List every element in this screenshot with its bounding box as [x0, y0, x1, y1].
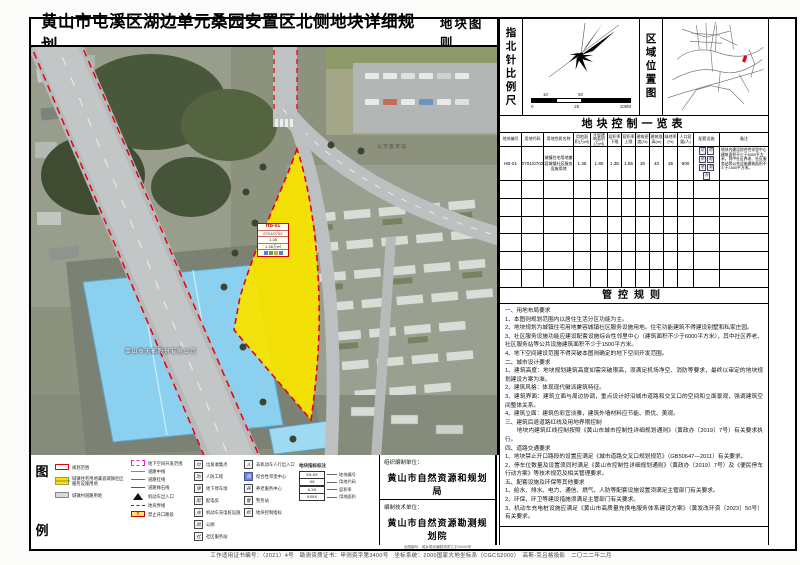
rule-line: 4、建筑立面：建筑色彩宜淡雅，建筑外墙材料应节能、质优、美观。 [505, 410, 763, 419]
legend-item-label: 城镇住宅用地兼容城镇社区服务设施用地 [72, 476, 127, 486]
region-location-map [663, 19, 768, 115]
empty-cell [694, 252, 720, 269]
legend-item: 邻综合性邻里中心 [244, 472, 296, 481]
empty-cell [650, 181, 664, 198]
empty-cell [500, 181, 522, 198]
legend-item: 社社区服务站 [194, 532, 242, 541]
yellow-fill-swatch: 0701/0702 [55, 477, 69, 485]
empty-cell [574, 270, 591, 287]
north-arrow-cell: 10 50 0 25 100M [523, 19, 640, 115]
plot-tag-icons [258, 250, 288, 256]
table-empty-row [500, 234, 768, 252]
empty-cell [574, 234, 591, 251]
table-empty-row [500, 181, 768, 199]
empty-cell [574, 199, 591, 216]
rule-line: 4、地下空间建设范围不得突破本图则确定的地下空间开发范围。 [505, 350, 763, 359]
table-cell: 城镇住宅用地兼容城镇社区服务设施用地 [544, 147, 574, 180]
empty-cell [522, 252, 544, 269]
scale-tick-25: 25 [574, 104, 579, 109]
legend-item: 道路缘石线 [131, 485, 191, 490]
no-open-swatch [131, 511, 145, 517]
region-map-label: 区域位置图 [640, 19, 663, 115]
legend-item: 机动车出入口 [131, 493, 191, 500]
rule-line: 1、地块禁止开口路段的设置应满足《城市道路交叉口规划规范》（GB50647—20… [505, 453, 763, 462]
empty-cell [500, 199, 522, 216]
legend-item: 防人防工程 [194, 472, 242, 481]
empty-cell [544, 181, 574, 198]
footer-disclaimer: 工作适用证书编号：（2021）4号 勘测资质证书：甲测资字第3400号 坐标系统… [29, 551, 793, 559]
facility-icon: 标 [244, 508, 253, 517]
empty-cell [694, 217, 720, 234]
legend-item: 城镇村道路用地 [55, 492, 127, 498]
control-rules-panel: 管控规则 一、用地布局要求1、本图则规划范围内以居住生活分区功能为主。2、地块规… [500, 288, 768, 527]
facility-icon: 厕 [194, 520, 203, 529]
empty-cell [522, 234, 544, 251]
magenta-dash-swatch [131, 460, 145, 466]
legend-item-label: 道路缘石线 [148, 485, 169, 490]
scale-tick-100: 100M [620, 104, 631, 109]
column-header: 建筑限高(m) [650, 133, 664, 146]
empty-cell [636, 270, 650, 287]
table-cell: 35 [664, 147, 678, 180]
annotation-leader [327, 497, 337, 498]
column-header: 建筑密度(%) [636, 133, 650, 146]
legend-item: 规划范围 [55, 464, 127, 470]
column-header: 容积率上限 [622, 133, 636, 146]
empty-cell [636, 217, 650, 234]
column-header: 计容建筑面积(万㎡) [591, 133, 608, 146]
scale-tick-0: 0 [531, 104, 534, 109]
empty-cell [664, 199, 678, 216]
empty-cell [622, 181, 636, 198]
rule-line: 2、停车位数量及设置须同时满足《黄山市控制性详细规划通则》（黄政办〔2019〕7… [505, 462, 763, 479]
empty-cell [608, 234, 622, 251]
column-header: 容积率下限 [608, 133, 622, 146]
landuse-code: 0701/0702 [56, 478, 68, 485]
rule-line: 1、给水、排水、电力、通信、燃气、人防等配套设施设置须满足主管部门有关要求。 [505, 487, 763, 496]
empty-cell [694, 270, 720, 287]
empty-cell [574, 217, 591, 234]
legend-item: 垃垃圾收集点 [194, 460, 242, 469]
organizing-unit-name: 黄山市自然资源和规划局 [384, 471, 491, 497]
empty-cell [678, 181, 694, 198]
arrow-swatch [133, 493, 143, 500]
table-data-row: HB-010701/0702城镇住宅用地兼容城镇社区服务设施用地1.381.90… [500, 147, 768, 181]
empty-cell [694, 181, 720, 198]
empty-cell [608, 217, 622, 234]
legend-item-label: 养老服务中心 [256, 486, 282, 491]
compass-scale-label: 指北针比例尺 [500, 19, 523, 115]
drawing-sheet-frame: 黄山市屯溪区湖边单元桑园安置区北侧地块详细规划 地块图则 [29, 17, 797, 551]
empty-cell [720, 199, 768, 216]
control-rules-text: 一、用地布局要求1、本图则规划范围内以居住生活分区功能为主。2、地块规划为城镇住… [500, 304, 768, 525]
empty-cell [664, 252, 678, 269]
legend-item-label: 配电房 [206, 498, 219, 503]
rule-line: 2、建筑风格：体现现代徽派建筑特征。 [505, 384, 763, 393]
rule-line: 四、道路交通要求 [505, 445, 763, 454]
rule-line: 3、建筑界面：建筑立面与周边协调，重点设计好沿城市道路和交叉口的空间和立面景观，… [505, 393, 763, 410]
empty-cell [694, 199, 720, 216]
rule-line: 3、机动车充电桩设施应满足《黄山市高质量充换电服务体系建设方案》（黄发改环资〔2… [505, 505, 763, 522]
empty-cell [720, 270, 768, 287]
empty-cell [591, 199, 608, 216]
legend-item: 地块界线 [131, 503, 191, 508]
facility-icon: 社 [703, 172, 711, 180]
column-header: 备注 [720, 133, 768, 146]
empty-cell [522, 199, 544, 216]
facility-icon: 人 [244, 460, 253, 469]
column-header: 地块编号 [500, 133, 522, 146]
facilities-cell: 垃防停配充厕社 [694, 147, 720, 180]
plot-control-table: 地块控制一览表 地块编号用地代码用地性质名称用地面积(万㎡)计容建筑面积(万㎡)… [500, 116, 768, 288]
legend-item: 道路红线 [131, 477, 191, 482]
empty-cell [650, 234, 664, 251]
facility-icon: 停 [194, 484, 203, 493]
legend-item-label: 地下空间开发范围 [148, 461, 182, 466]
legend-title: 图 例 [35, 461, 49, 539]
empty-cell [678, 217, 694, 234]
legend-item-label: 社区服务站 [206, 534, 227, 539]
organizing-unit-cell: 组织编制单位： 黄山市自然资源和规划局 [380, 455, 495, 500]
legend-item: 充机动车充电桩设施 [194, 508, 242, 517]
empty-cell [591, 270, 608, 287]
empty-cell [622, 199, 636, 216]
facility-icon: 充 [699, 164, 707, 172]
legend-item: 道路中线 [131, 469, 191, 474]
empty-cell [622, 217, 636, 234]
rule-line: 三、建筑后退道路红线及用地界限控制 [505, 419, 763, 428]
table-empty-row [500, 252, 768, 270]
empty-cell [522, 270, 544, 287]
column-header: 人口容量(人) [678, 133, 694, 146]
empty-cell [608, 181, 622, 198]
empty-cell [608, 270, 622, 287]
mini-facility-icon [269, 251, 273, 255]
column-header: 绿地率(%) [664, 133, 678, 146]
region-map-graphic [663, 19, 768, 115]
annotation-label: 用地代码 [339, 479, 356, 485]
empty-cell [664, 217, 678, 234]
legend-column-services: 人非机动车人行出入口邻综合性邻里中心养养老服务中心警警务站标地块控制指标 [244, 460, 296, 517]
right-info-panel: 指北针比例尺 [499, 19, 769, 545]
empty-cell [591, 234, 608, 251]
legend-item: 配配电房 [194, 496, 242, 505]
empty-cell [500, 217, 522, 234]
facility-icon: 社 [194, 532, 203, 541]
control-rules-title: 管控规则 [500, 288, 768, 304]
facility-icon: 充 [194, 508, 203, 517]
bus-terminus-label: 公交首末站 [377, 143, 407, 150]
legend-char-2: 例 [35, 520, 49, 539]
empty-cell [678, 199, 694, 216]
compass-region-row: 指北针比例尺 [500, 19, 768, 116]
page-subtitle: 地块图则 [440, 13, 497, 51]
empty-cell [650, 270, 664, 287]
legend-char-1: 图 [35, 461, 49, 480]
empty-cell [500, 270, 522, 287]
empty-cell [678, 234, 694, 251]
column-header: 用地性质名称 [544, 133, 574, 146]
remark-cell: 地块内建设综合性邻里中心建筑面积不少于6000平方米，其中社区养老、社区服务站等… [720, 147, 768, 180]
rule-line: 一、用地布局要求 [505, 307, 763, 316]
empty-cell [608, 252, 622, 269]
empty-cell [720, 181, 768, 198]
rule-line: 地块内建筑红线控制按照《黄山市城市控制性详细规划通则》（黄政办〔2019〕7号）… [505, 427, 763, 444]
empty-cell [636, 199, 650, 216]
facility-icon: 防 [707, 147, 715, 155]
facility-icon: 防 [194, 472, 203, 481]
table-cell: 30 [636, 147, 650, 180]
gray-fill-swatch [55, 492, 69, 498]
annotation-label: 用地面积 [339, 494, 356, 500]
empty-cell [622, 270, 636, 287]
table-cell: 800 [678, 147, 694, 180]
legend-item: 停地下停车场 [194, 484, 242, 493]
factory-name-label: 黄山市天都股份有限公司 [91, 347, 231, 355]
legend-column-lines: 地下空间开发范围道路中线道路红线道路缘石线机动车出入口地块界线禁止开口路段 [131, 460, 191, 517]
legend-item-label: 禁止开口路段 [148, 512, 174, 517]
empty-cell [544, 217, 574, 234]
facility-icon: 垃 [699, 147, 707, 155]
empty-cell [544, 199, 574, 216]
table-cell: 1.55 [622, 147, 636, 180]
table-empty-row [500, 217, 768, 235]
empty-cell [522, 181, 544, 198]
annotation-row: XXXX用地面积 [299, 493, 391, 501]
technical-unit-name: 黄山市自然资源勘测规划院 [384, 516, 491, 542]
rule-line: 1、本图则规划范围内以居住生活分区功能为主。 [505, 316, 763, 325]
table-empty-row [500, 199, 768, 217]
empty-cell [500, 234, 522, 251]
legend-column-landuse: 规划范围0701/0702城镇住宅用地兼容城镇社区服务设施用地城镇村道路用地 [55, 464, 127, 498]
plot-annotation-key: 地块指标标注 XX-XX地块编号XX用地代码X.XX容积率XXXX用地面积 [299, 463, 391, 501]
legend-item: 0701/0702城镇住宅用地兼容城镇社区服务设施用地 [55, 476, 127, 486]
table-cell: 1.38 [608, 147, 622, 180]
facility-icon: 配 [707, 156, 715, 164]
column-header: 用地代码 [522, 133, 544, 146]
empty-cell [650, 199, 664, 216]
plot-indicator-tag: HB-010701/07021.381.38万㎡ [257, 223, 289, 257]
red-outline-swatch [55, 464, 69, 470]
empty-cell [544, 270, 574, 287]
table-cell: HB-01 [500, 147, 522, 180]
facility-icons: 垃防停配充厕社 [695, 147, 719, 179]
empty-cell [591, 252, 608, 269]
title-bar: 黄山市屯溪区湖边单元桑园安置区北侧地块详细规划 地块图则 [31, 19, 499, 47]
legend-item-label: 垃圾收集点 [206, 462, 227, 467]
mini-facility-icon [279, 251, 283, 255]
organizing-unit-label: 组织编制单位： [384, 458, 491, 466]
annotation-label: 地块编号 [339, 472, 356, 478]
rule-line: 二、城市设计要求 [505, 359, 763, 368]
annotation-leader [327, 474, 337, 475]
legend-item-label: 地下停车场 [206, 486, 227, 491]
empty-cell [574, 252, 591, 269]
empty-cell [636, 234, 650, 251]
empty-cell [720, 252, 768, 269]
legend-item: 地下空间开发范围 [131, 460, 191, 466]
facility-icon: 警 [244, 496, 253, 505]
scale-upper-tick-50: 50 [578, 92, 583, 98]
table-cell: 0701/0702 [522, 147, 544, 180]
empty-cell [608, 199, 622, 216]
rule-line: 1、建筑高度：地块规划建筑高度如需突破限高，须满足机场净空、消防等要求，最终以审… [505, 367, 763, 384]
empty-cell [678, 270, 694, 287]
legend-item: 警警务站 [244, 496, 296, 505]
legend-item-label: 机动车充电桩设施 [206, 510, 240, 515]
table-cell: 40 [650, 147, 664, 180]
legend-item-label: 道路中线 [148, 469, 165, 474]
legend-item: 人非机动车人行出入口 [244, 460, 296, 469]
aerial-plan-map: HB-010701/07021.381.38万㎡ 黄山市天都股份有限公司 公交首… [31, 47, 499, 455]
facility-icon: 邻 [244, 472, 253, 481]
annotation-leader [327, 489, 337, 490]
legend-item: 标地块控制指标 [244, 508, 296, 517]
legend-item-label: 地块界线 [148, 503, 165, 508]
legend-item-label: 非机动车人行出入口 [256, 462, 295, 467]
legend-item-label: 机动车出入口 [148, 494, 174, 499]
facility-icon: 配 [194, 496, 203, 505]
empty-cell [664, 270, 678, 287]
legend-column-facilities: 垃垃圾收集点防人防工程停地下停车场配配电房充机动车充电桩设施厕公厕社社区服务站 [194, 460, 242, 541]
scale-strip [531, 98, 631, 104]
annotation-label: 容积率 [339, 487, 352, 493]
technical-unit-label: 编制技术单位： [384, 503, 491, 511]
line-plot-swatch [131, 505, 145, 506]
mini-facility-icon [264, 251, 268, 255]
column-header: 用地面积(万㎡) [574, 133, 591, 146]
empty-cell [622, 234, 636, 251]
empty-cell [678, 252, 694, 269]
north-arrow-icon [523, 19, 639, 91]
facility-icon: 厕 [707, 164, 715, 172]
legend-item-label: 人防工程 [206, 474, 223, 479]
annotation-sample: XXXX [299, 493, 325, 501]
certificate-number: 出图编号：城乡规划编制资质乙字34040号 [384, 545, 491, 550]
plan-sheet-page: { "title":{"main":"黄山市屯溪区湖边单元桑园安置区北侧地块详细… [0, 0, 800, 565]
legend-item-label: 公厕 [206, 522, 215, 527]
rule-line: 五、配套设施及环保等其他要求 [505, 479, 763, 488]
annotation-leader [327, 482, 337, 483]
empty-cell [622, 252, 636, 269]
mini-facility-icon [274, 251, 278, 255]
facility-icon: 养 [244, 484, 253, 493]
rule-line: 2、环保、环卫等建设措施须满足主管部门有关要求。 [505, 496, 763, 505]
empty-cell [522, 217, 544, 234]
credits-panel: 组织编制单位： 黄山市自然资源和规划局 编制技术单位： 黄山市自然资源勘测规划院… [379, 455, 497, 545]
legend-item-label: 规划范围 [72, 465, 89, 470]
legend-item-label: 警务站 [256, 498, 269, 503]
empty-cell [591, 181, 608, 198]
line-red-swatch [131, 479, 145, 480]
scale-bar: 10 50 0 25 100M [531, 92, 631, 110]
line-curb-swatch [131, 487, 145, 488]
legend-item: 厕公厕 [194, 520, 242, 529]
line-center-swatch [131, 471, 145, 472]
empty-cell [694, 234, 720, 251]
empty-cell [636, 181, 650, 198]
rule-line: 3、社区服务设施功能应建设配套设施综合性邻里中心（建筑面积不少于6000平方米）… [505, 333, 763, 350]
facility-icon: 垃 [194, 460, 203, 469]
legend-item: 养养老服务中心 [244, 484, 296, 493]
empty-cell [500, 252, 522, 269]
empty-cell [636, 252, 650, 269]
legend-item-label: 地块控制指标 [256, 510, 282, 515]
technical-unit-cell: 编制技术单位： 黄山市自然资源勘测规划院 出图编号：城乡规划编制资质乙字3404… [380, 500, 495, 545]
legend-item-label: 城镇村道路用地 [72, 493, 102, 498]
empty-cell [591, 217, 608, 234]
empty-cell [664, 181, 678, 198]
facility-icon: 停 [699, 156, 707, 164]
legend-item-label: 道路红线 [148, 477, 165, 482]
empty-cell [720, 234, 768, 251]
empty-cell [544, 252, 574, 269]
column-header: 配套设施 [694, 133, 720, 146]
scale-upper-tick-10: 10 [543, 92, 548, 98]
legend-item-label: 综合性邻里中心 [256, 474, 286, 479]
table-cell: 1.38 [574, 147, 591, 180]
table-cell: 1.90 [591, 147, 608, 180]
empty-cell [664, 234, 678, 251]
empty-cell [650, 217, 664, 234]
annotation-title: 地块指标标注 [299, 463, 391, 469]
legend-item: 禁止开口路段 [131, 511, 191, 517]
table-empty-row [500, 270, 768, 288]
empty-cell [544, 234, 574, 251]
control-table-title: 地块控制一览表 [500, 116, 768, 133]
table-header-row: 地块编号用地代码用地性质名称用地面积(万㎡)计容建筑面积(万㎡)容积率下限容积率… [500, 133, 768, 147]
empty-cell [574, 181, 591, 198]
empty-cell [720, 217, 768, 234]
empty-cell [650, 252, 664, 269]
rule-line: 2、地块规划为城镇住宅用地兼容城镇社区服务设施用地。住宅功能建筑不得建设别墅和私… [505, 324, 763, 333]
